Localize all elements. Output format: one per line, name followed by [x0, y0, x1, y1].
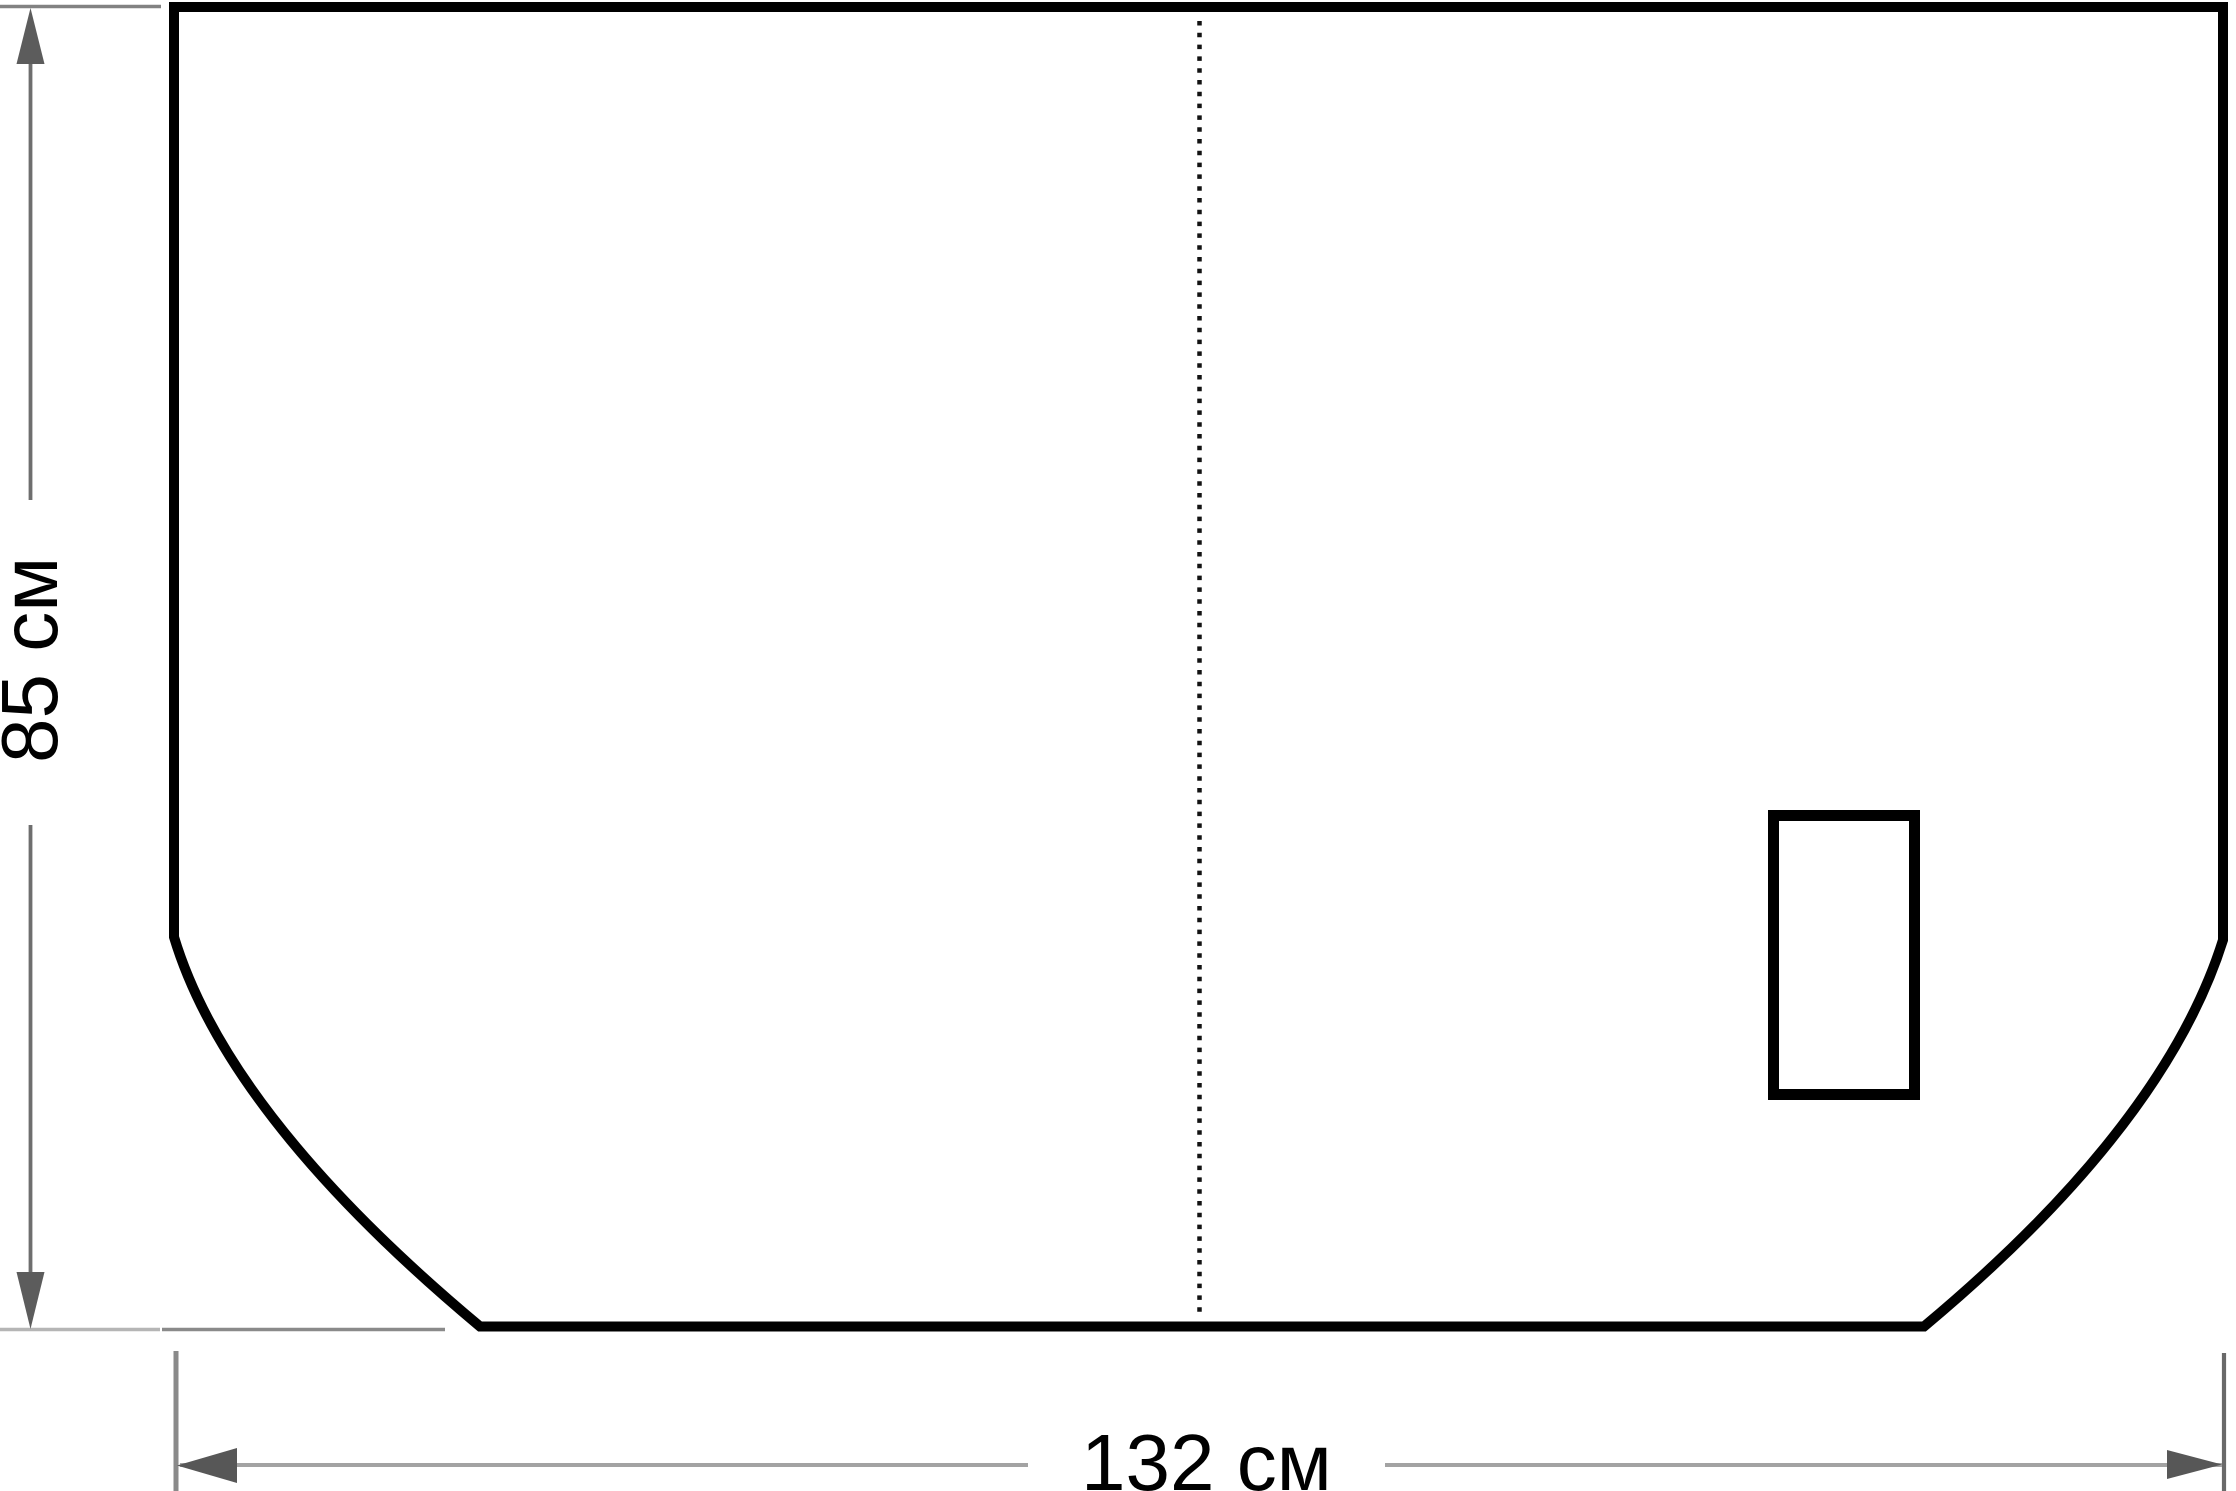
- svg-text:132 см: 132 см: [1081, 1418, 1332, 1491]
- svg-text:85 см: 85 см: [0, 557, 74, 763]
